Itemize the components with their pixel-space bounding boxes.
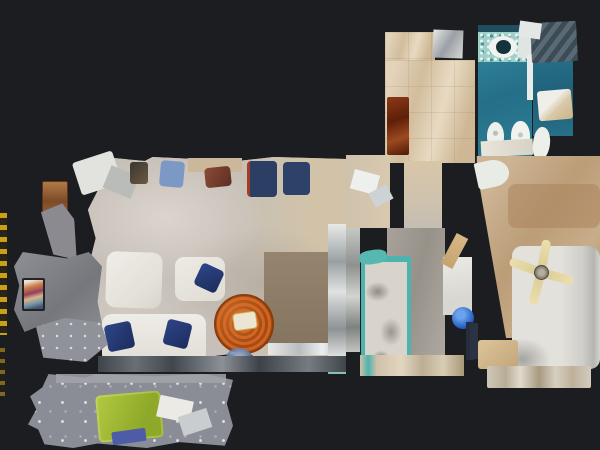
vanity <box>537 89 573 122</box>
hallway-floor-top <box>385 32 435 62</box>
floor-warm-patch <box>508 184 600 228</box>
tv <box>22 278 45 311</box>
bedroom-foot-clutter <box>360 355 464 376</box>
sink-basin <box>496 40 511 54</box>
hall-closet <box>433 29 464 58</box>
scan-artifact-yellow <box>0 348 5 396</box>
dark-chair <box>130 162 148 184</box>
corridor-floor <box>404 161 442 229</box>
mattress <box>365 262 407 368</box>
armchair <box>105 251 163 309</box>
nightstand <box>478 340 518 369</box>
tv-stand-lower <box>36 318 108 362</box>
ceiling-fan <box>534 265 549 280</box>
window-sill <box>98 356 346 372</box>
tv-corner <box>0 200 110 400</box>
table-tray <box>232 310 258 331</box>
dollhouse-viewport[interactable] <box>0 0 600 450</box>
room-bathroom[interactable] <box>478 22 600 162</box>
terrace-edge <box>56 374 226 383</box>
room-living-room[interactable] <box>88 155 346 375</box>
room-bedroom[interactable] <box>346 224 473 378</box>
dining-chair-navy <box>247 161 277 197</box>
room-terrace[interactable] <box>28 372 233 448</box>
runner-rug <box>387 97 409 155</box>
mirror-wardrobe-strip <box>346 228 360 352</box>
wall-top-sliver <box>518 21 542 40</box>
room-master-bedroom[interactable] <box>473 154 600 390</box>
room-hallway[interactable] <box>385 30 480 230</box>
glass-door-strip <box>328 224 346 374</box>
area-rug <box>264 252 328 344</box>
scan-artifact-yellow <box>0 213 7 335</box>
foot-bench <box>487 366 591 388</box>
dining-chair-navy <box>283 162 310 195</box>
shadow-gap <box>470 323 478 359</box>
desk-chair-blue <box>159 160 185 188</box>
chair-red <box>204 166 232 189</box>
tv-stand-arm <box>40 202 80 264</box>
